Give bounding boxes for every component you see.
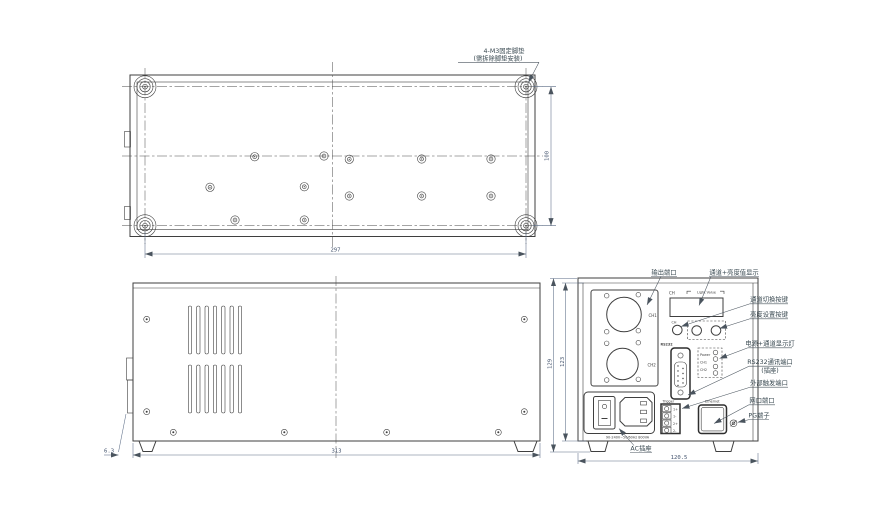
display-ch-header: CH [669, 291, 675, 296]
terminal-1m-label: 1- [673, 415, 677, 419]
channel-button-label: CH [672, 321, 677, 325]
bottom-screws [206, 152, 495, 224]
terminal-2p-label: 2+ [673, 422, 678, 426]
svg-text:(插座): (插座) [761, 366, 779, 375]
svg-text:通道切换按键: 通道切换按键 [750, 295, 788, 304]
callout-pg: PG端子 [738, 411, 770, 423]
dim-297: 297 [145, 232, 526, 258]
foot-pad-callout: 4-M3固定脚垫 (需拆除脚垫安装) [458, 46, 539, 83]
bottom-view: 4-M3固定脚垫 (需拆除脚垫安装) 297 100 [122, 46, 556, 258]
dim-depth-value: 100 [545, 151, 551, 161]
ch2-connector-label: CH2 [648, 363, 657, 368]
dim-height-body-value: 123 [560, 357, 566, 367]
side-screws [144, 316, 528, 435]
callout-output-port: 输出端口 [647, 268, 677, 306]
power-switch [594, 397, 616, 430]
rear-callouts: 输出端口 通道+亮度值显示 通道切换按键 亮度设置按键 电源+通道显示灯 [619, 268, 795, 453]
ch1-output-connector [607, 297, 642, 332]
channel-switch-button [673, 325, 683, 335]
vent-slots-bottom [188, 365, 241, 413]
centerlines [122, 62, 543, 250]
output-plate: CH1 CH2 [591, 290, 658, 386]
led-ch2-label: CH2 [700, 368, 707, 372]
display-group: CH Light Value [669, 291, 724, 317]
led-ch1-label: CH1 [700, 361, 707, 365]
svg-text:网口端口: 网口端口 [749, 396, 774, 405]
brightness-down-button [692, 326, 702, 336]
power-led [713, 350, 718, 355]
rear-view: CH1 CH2 90-240V [548, 268, 796, 465]
svg-text:外部触发端口: 外部触发端口 [750, 378, 788, 387]
dim-313: 313 [133, 443, 540, 458]
side-connector-tab [127, 358, 134, 380]
plate-screw-holes [604, 292, 640, 382]
trigger-label: Trigger [662, 400, 675, 404]
ac-inlet-block: 90-240V~50/60Hz 800VA [584, 392, 655, 440]
rs232-label: RS232 [661, 343, 674, 347]
ch2-output-connector [607, 348, 638, 379]
svg-text:输出端口: 输出端口 [651, 268, 676, 277]
side-connector-tab [128, 380, 134, 413]
foot-pad-callout-line1: 4-M3固定脚垫 [484, 46, 526, 55]
dim-120-5: 120.5 [578, 453, 758, 464]
dim-width-value: 297 [330, 248, 340, 254]
callout-brightness: 亮度设置按键 [720, 310, 789, 329]
display-window [670, 298, 723, 317]
ethernet-port: Ethernet [699, 400, 727, 434]
drawing-canvas: 4-M3固定脚垫 (需拆除脚垫安装) 297 100 [0, 0, 888, 522]
svg-text:PG端子: PG端子 [748, 411, 769, 420]
rs232-connector: RS232 [661, 343, 691, 400]
ac-socket [620, 398, 652, 427]
dim-100: 100 [533, 87, 556, 226]
dim-height-overall-value: 129 [548, 359, 554, 369]
left-foot [139, 441, 156, 452]
svg-text:RS232通讯端口: RS232通讯端口 [747, 357, 793, 366]
dim-123: 123 [560, 283, 586, 441]
dim-length-value: 313 [331, 449, 341, 455]
pg-terminal [730, 420, 737, 427]
callout-leds: 电源+通道显示灯 [720, 339, 796, 359]
foot-pad-callout-line2: (需拆除脚垫安装) [474, 54, 523, 63]
callout-channel-switch: 通道切换按键 [681, 295, 789, 327]
svg-text:电源+通道显示灯: 电源+通道显示灯 [745, 339, 795, 348]
terminal-1p-label: 1+ [673, 408, 678, 412]
button-group: CH [672, 321, 726, 340]
indicator-led-box: Power CH1 CH2 [698, 348, 722, 378]
svg-text:亮度设置按键: 亮度设置按键 [750, 310, 788, 319]
ch1-connector-label: CH1 [649, 313, 658, 318]
power-led [713, 357, 718, 362]
dim-foot-offset-value: 6.3 [104, 449, 114, 455]
dim-rear-width-value: 120.5 [671, 455, 688, 461]
brightness-up-button [711, 326, 721, 336]
svg-text:通道+亮度值显示: 通道+亮度值显示 [709, 268, 758, 277]
vent-slots-top [188, 306, 241, 354]
led-power-label: Power [700, 353, 711, 357]
right-foot [713, 441, 734, 452]
side-view-case [133, 283, 540, 441]
engineering-drawing-page: 4-M3固定脚垫 (需拆除脚垫安装) 297 100 [0, 0, 888, 522]
terminal-2m-label: 2- [673, 429, 677, 433]
right-foot [514, 441, 537, 452]
switch-off-symbol [602, 404, 606, 408]
display-value-header: Light Value [697, 291, 716, 295]
ch2-led [713, 371, 718, 376]
dim-6-3: 6.3 [104, 414, 126, 455]
side-view: 313 6.3 [104, 276, 540, 458]
left-foot [588, 441, 608, 452]
trigger-terminal-block: Trigger 1+ 1- 2+ 2- [661, 400, 680, 434]
rear-panel-case [578, 278, 758, 441]
ethernet-label: Ethernet [705, 400, 720, 404]
rs232-pins [677, 365, 683, 386]
ch1-led [713, 364, 718, 369]
